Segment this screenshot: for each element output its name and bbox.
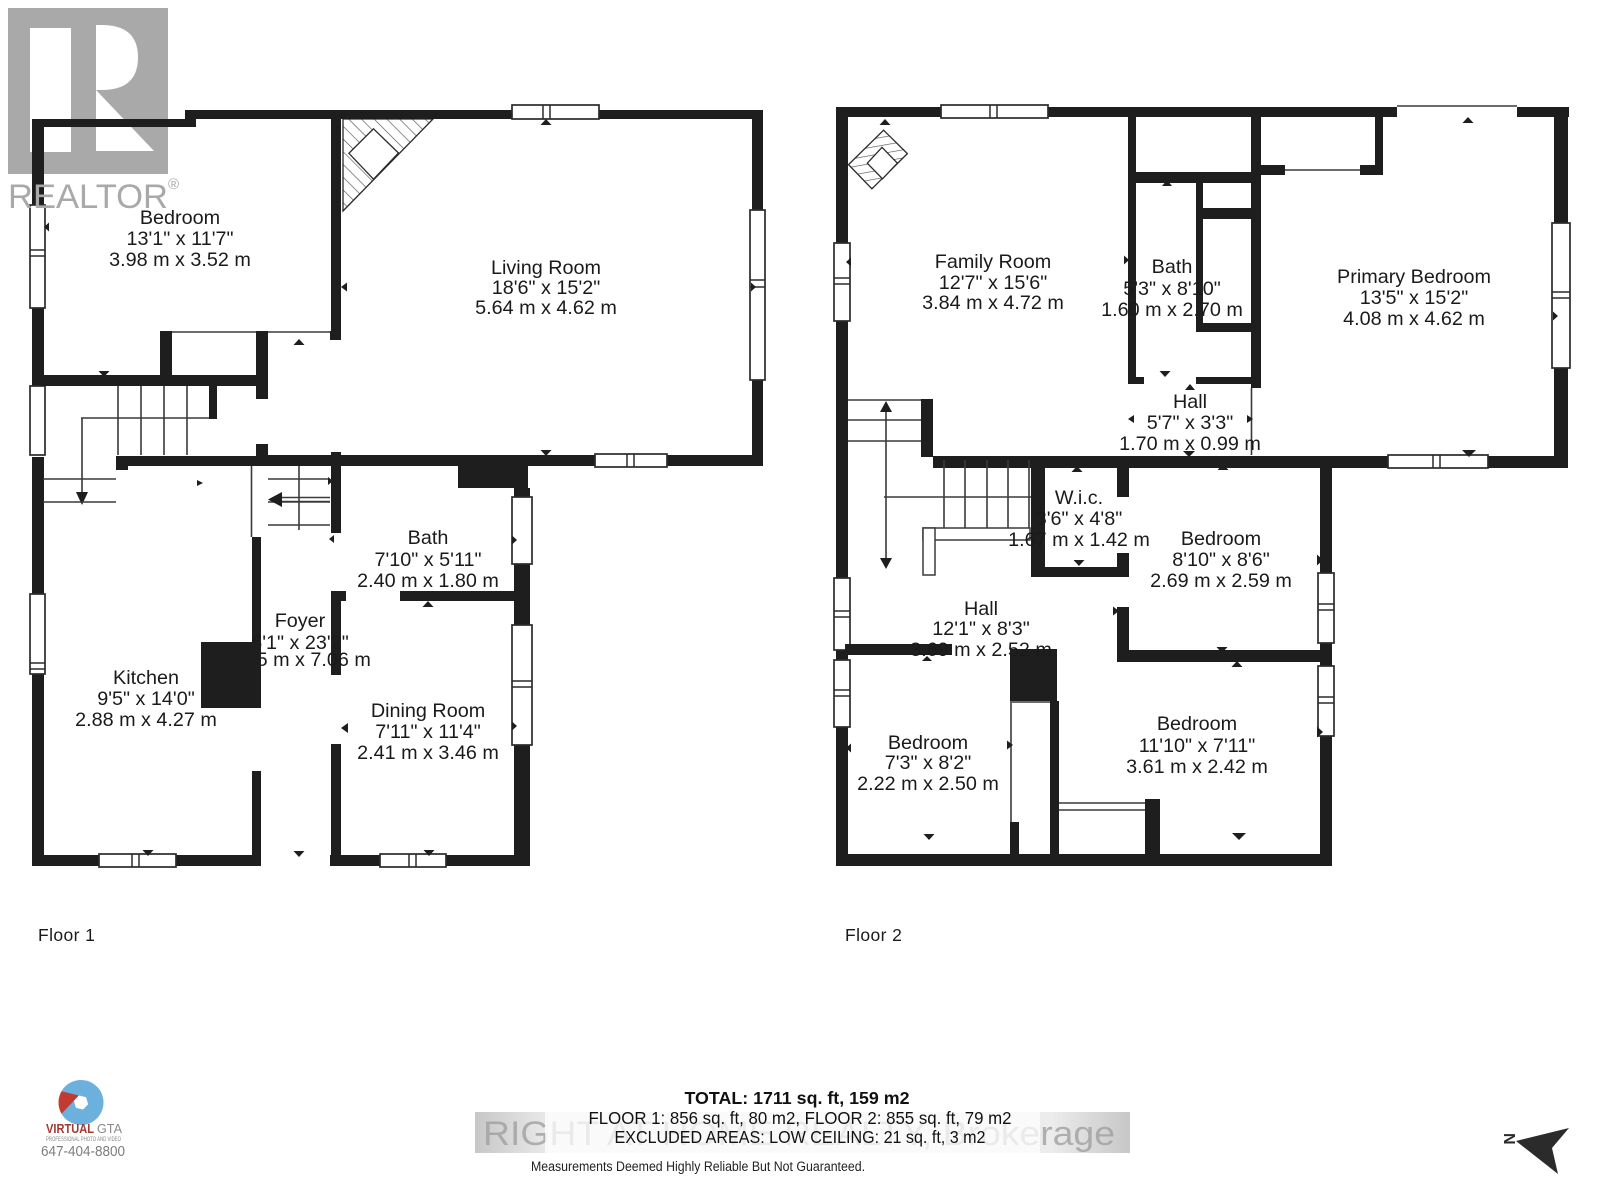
svg-text:12'7" x 15'6": 12'7" x 15'6" <box>939 272 1048 294</box>
svg-text:18'6" x 15'2": 18'6" x 15'2" <box>492 277 601 299</box>
svg-text:Floor 1: Floor 1 <box>38 925 95 945</box>
svg-text:Living Room: Living Room <box>491 257 601 279</box>
svg-text:Bedroom: Bedroom <box>1157 713 1237 735</box>
svg-text:REALTOR: REALTOR <box>8 178 168 216</box>
svg-text:2.22 m x 2.50 m: 2.22 m x 2.50 m <box>857 773 999 795</box>
svg-text:Dining Room: Dining Room <box>371 700 485 722</box>
svg-text:Bedroom: Bedroom <box>888 732 968 754</box>
svg-text:13'5" x 15'2": 13'5" x 15'2" <box>1360 287 1469 309</box>
svg-text:EXCLUDED AREAS: LOW CEILING: 2: EXCLUDED AREAS: LOW CEILING: 21 sq. ft, … <box>615 1127 986 1147</box>
svg-text:Measurements Deemed Highly Rel: Measurements Deemed Highly Reliable But … <box>531 1159 865 1174</box>
svg-text:5'3" x 8'10": 5'3" x 8'10" <box>1123 278 1221 300</box>
svg-text:Primary Bedroom: Primary Bedroom <box>1337 266 1491 288</box>
svg-text:7'10" x 5'11": 7'10" x 5'11" <box>374 549 481 571</box>
svg-text:VIRTUAL: VIRTUAL <box>46 1121 94 1136</box>
svg-text:2.69 m x 2.59 m: 2.69 m x 2.59 m <box>1150 570 1292 592</box>
svg-text:7'11" x 11'4": 7'11" x 11'4" <box>375 721 481 743</box>
svg-text:3.98 m x 3.52 m: 3.98 m x 3.52 m <box>109 249 251 271</box>
svg-text:9'5" x 14'0": 9'5" x 14'0" <box>97 688 195 710</box>
svg-text:12'1" x 8'3": 12'1" x 8'3" <box>932 618 1030 640</box>
svg-text:647-404-8800: 647-404-8800 <box>41 1144 125 1160</box>
svg-text:11'10" x 7'11": 11'10" x 7'11" <box>1139 735 1256 757</box>
svg-text:W.i.c.: W.i.c. <box>1055 487 1103 509</box>
svg-text:Kitchen: Kitchen <box>113 667 179 689</box>
svg-text:Foyer: Foyer <box>275 610 326 632</box>
svg-text:1.70 m x 0.99 m: 1.70 m x 0.99 m <box>1119 433 1261 455</box>
svg-text:Bath: Bath <box>408 527 449 549</box>
svg-text:1.60 m x 2.70 m: 1.60 m x 2.70 m <box>1101 299 1243 321</box>
svg-text:2.40 m x 1.80 m: 2.40 m x 1.80 m <box>357 570 499 592</box>
svg-text:13'1" x 11'7": 13'1" x 11'7" <box>126 228 233 250</box>
svg-text:1.67 m x 1.42 m: 1.67 m x 1.42 m <box>1008 529 1150 551</box>
svg-text:Hall: Hall <box>1173 391 1207 413</box>
svg-text:Floor 2: Floor 2 <box>845 925 902 945</box>
svg-text:3.84 m x 4.72 m: 3.84 m x 4.72 m <box>922 292 1064 314</box>
svg-text:TOTAL: 1711 sq. ft, 159 m2: TOTAL: 1711 sq. ft, 159 m2 <box>685 1088 910 1108</box>
svg-text:3.61 m x 2.42 m: 3.61 m x 2.42 m <box>1126 756 1268 778</box>
svg-text:FLOOR 1: 856 sq. ft, 80 m2, FL: FLOOR 1: 856 sq. ft, 80 m2, FLOOR 2: 855… <box>589 1108 1012 1128</box>
svg-text:2.88 m x 4.27 m: 2.88 m x 4.27 m <box>75 709 217 731</box>
svg-text:5'7" x 3'3": 5'7" x 3'3" <box>1147 412 1234 434</box>
svg-text:3'6" x 4'8": 3'6" x 4'8" <box>1036 508 1123 530</box>
svg-text:5.64 m x 4.62 m: 5.64 m x 4.62 m <box>475 297 617 319</box>
svg-text:7'3" x 8'2": 7'3" x 8'2" <box>885 752 972 774</box>
svg-text:PROFESSIONAL PHOTO AND VIDEO: PROFESSIONAL PHOTO AND VIDEO <box>46 1136 121 1143</box>
svg-text:2.41 m x 3.46 m: 2.41 m x 3.46 m <box>357 742 499 764</box>
svg-text:Family Room: Family Room <box>935 251 1052 273</box>
svg-text:N: N <box>1500 1133 1517 1145</box>
svg-text:8'10" x 8'6": 8'10" x 8'6" <box>1172 549 1270 571</box>
svg-text:4.08 m x 4.62 m: 4.08 m x 4.62 m <box>1343 308 1485 330</box>
svg-text:GTA: GTA <box>97 1121 122 1136</box>
svg-text:3.69 m x 2.52 m: 3.69 m x 2.52 m <box>910 639 1052 661</box>
svg-text:Bedroom: Bedroom <box>1181 528 1261 550</box>
svg-text:®: ® <box>168 176 179 193</box>
svg-text:Bath: Bath <box>1152 256 1193 278</box>
svg-text:Hall: Hall <box>964 598 998 620</box>
